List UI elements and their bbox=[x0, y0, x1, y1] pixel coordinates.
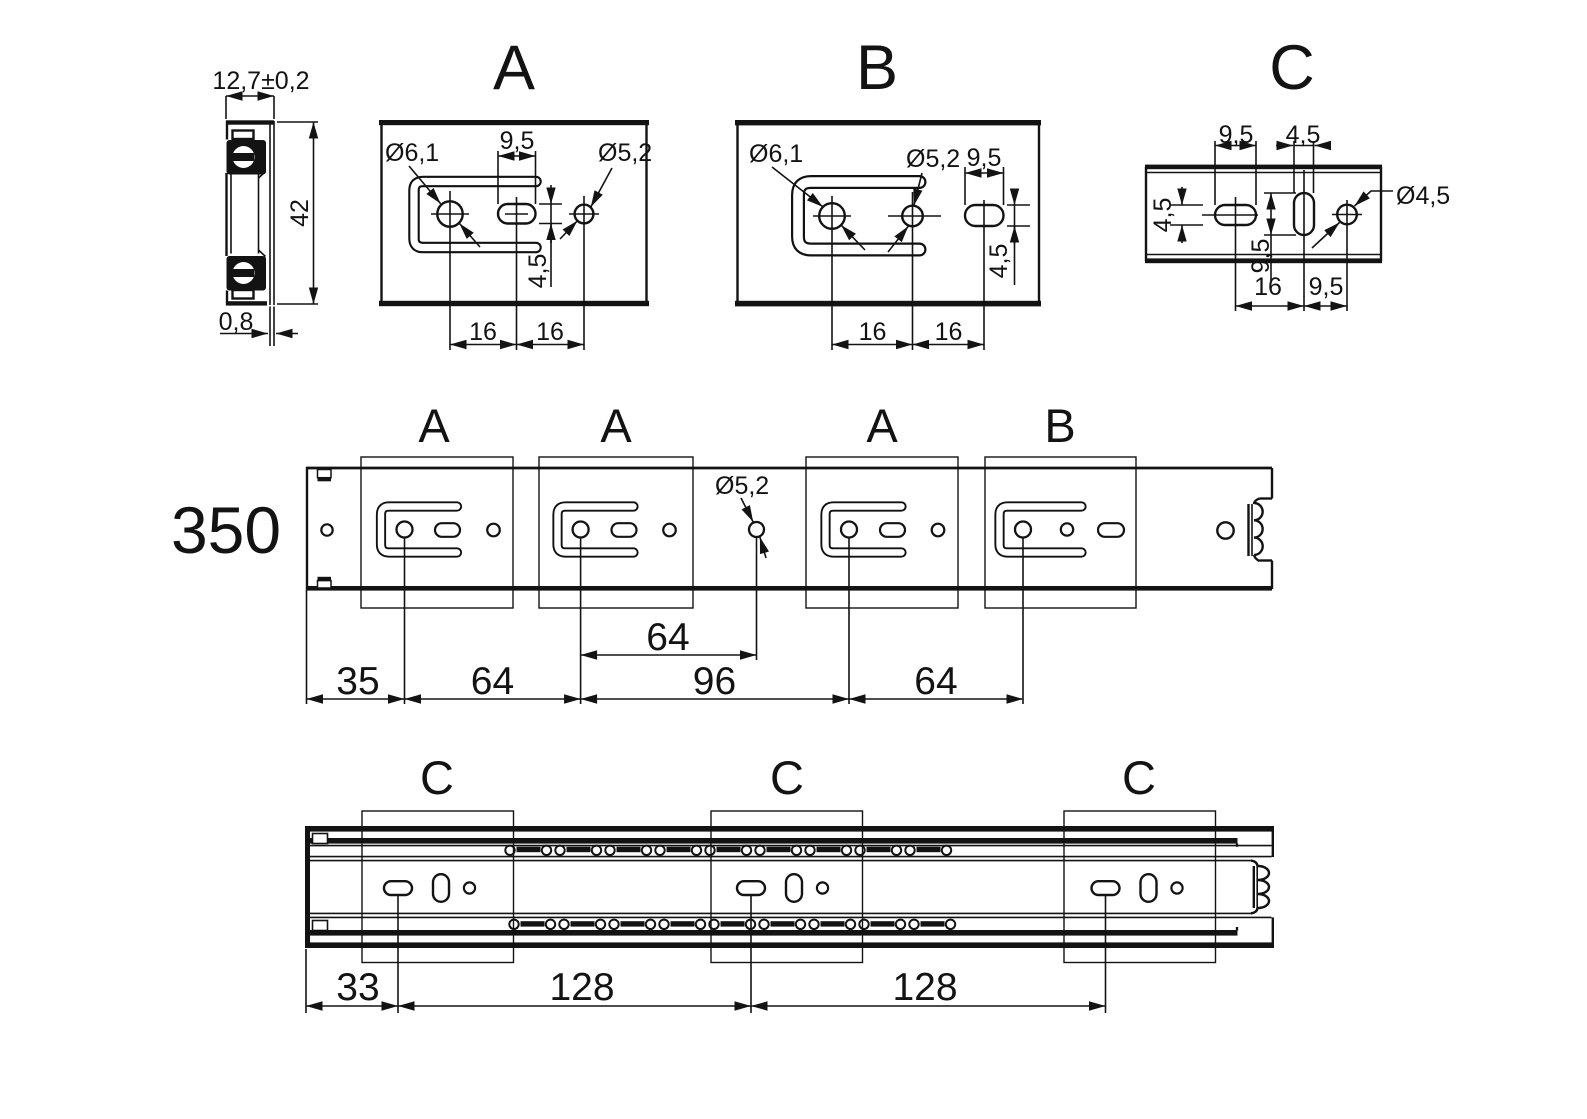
svg-text:9,5: 9,5 bbox=[967, 144, 1002, 172]
svg-text:Ø6,1: Ø6,1 bbox=[385, 139, 439, 167]
svg-text:35: 35 bbox=[336, 660, 379, 703]
svg-text:16: 16 bbox=[935, 318, 963, 346]
svg-text:B: B bbox=[856, 33, 898, 103]
svg-text:A: A bbox=[418, 399, 450, 452]
svg-text:16: 16 bbox=[469, 318, 497, 346]
svg-text:9,5: 9,5 bbox=[500, 127, 535, 155]
svg-text:Ø4,5: Ø4,5 bbox=[1396, 182, 1450, 210]
svg-text:16: 16 bbox=[536, 318, 564, 346]
svg-text:Ø6,1: Ø6,1 bbox=[749, 140, 803, 168]
svg-text:A: A bbox=[866, 399, 898, 452]
svg-text:0,8: 0,8 bbox=[219, 308, 254, 336]
svg-text:B: B bbox=[1044, 399, 1075, 452]
svg-text:350: 350 bbox=[171, 493, 281, 567]
svg-text:9,5: 9,5 bbox=[1247, 239, 1275, 274]
svg-text:16: 16 bbox=[859, 318, 887, 346]
svg-text:A: A bbox=[600, 399, 632, 452]
svg-text:A: A bbox=[493, 33, 535, 103]
svg-text:128: 128 bbox=[892, 966, 957, 1009]
svg-text:33: 33 bbox=[336, 966, 379, 1009]
svg-text:C: C bbox=[420, 751, 454, 804]
svg-text:42: 42 bbox=[286, 199, 314, 227]
svg-text:C: C bbox=[770, 751, 804, 804]
svg-text:64: 64 bbox=[471, 660, 514, 703]
svg-text:C: C bbox=[1269, 33, 1315, 103]
svg-text:64: 64 bbox=[646, 616, 689, 659]
svg-text:12,7±0,2: 12,7±0,2 bbox=[212, 67, 309, 95]
svg-text:128: 128 bbox=[549, 966, 614, 1009]
svg-text:4,5: 4,5 bbox=[1149, 198, 1177, 233]
svg-text:16: 16 bbox=[1254, 273, 1282, 301]
svg-text:Ø5,2: Ø5,2 bbox=[715, 472, 769, 500]
svg-text:Ø5,2: Ø5,2 bbox=[598, 139, 652, 167]
svg-text:C: C bbox=[1122, 751, 1156, 804]
svg-text:64: 64 bbox=[914, 660, 957, 703]
svg-text:Ø5,2: Ø5,2 bbox=[906, 145, 960, 173]
svg-text:4,5: 4,5 bbox=[985, 244, 1013, 279]
svg-text:4,5: 4,5 bbox=[524, 254, 552, 289]
svg-text:9,5: 9,5 bbox=[1309, 273, 1344, 301]
svg-text:96: 96 bbox=[693, 660, 736, 703]
